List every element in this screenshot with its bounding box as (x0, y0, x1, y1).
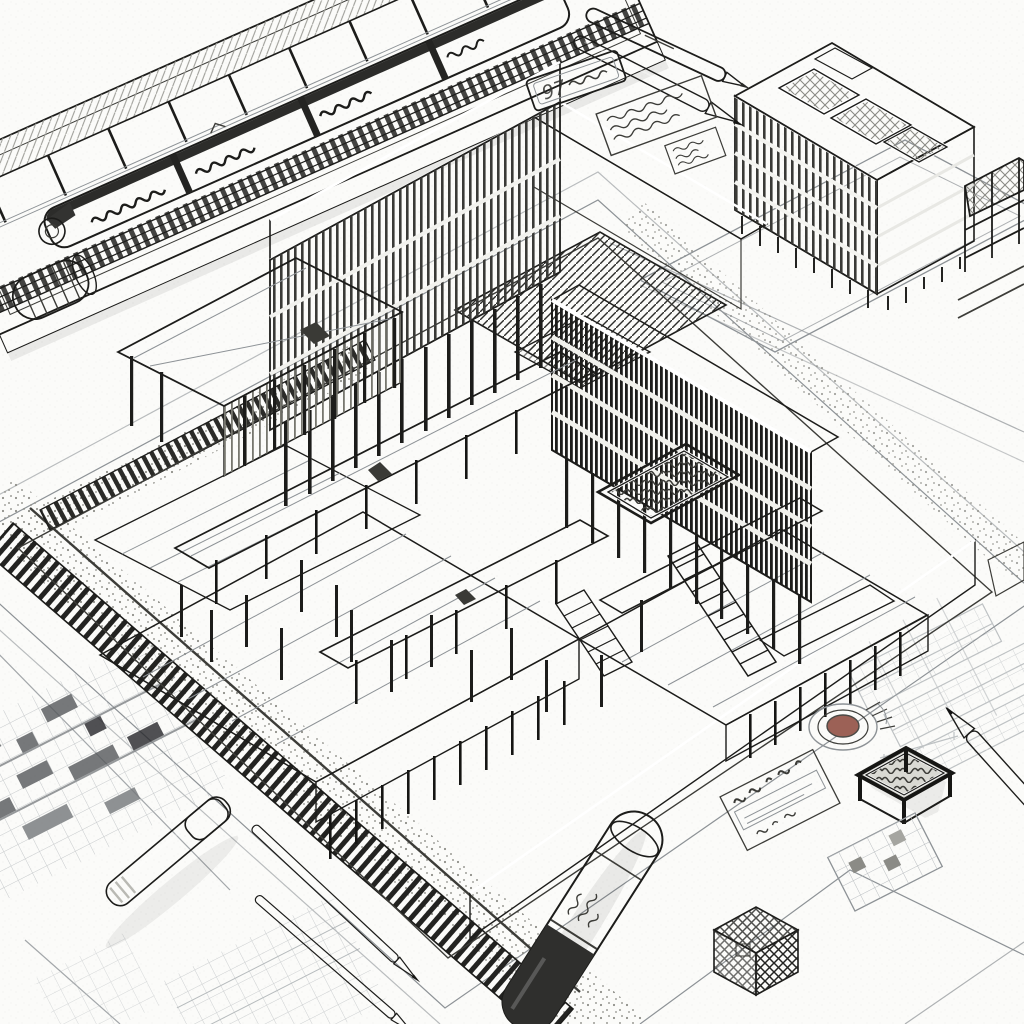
sketch-canvas: 97 (0, 0, 1024, 1024)
illustration-svg: 97 (0, 0, 1024, 1024)
